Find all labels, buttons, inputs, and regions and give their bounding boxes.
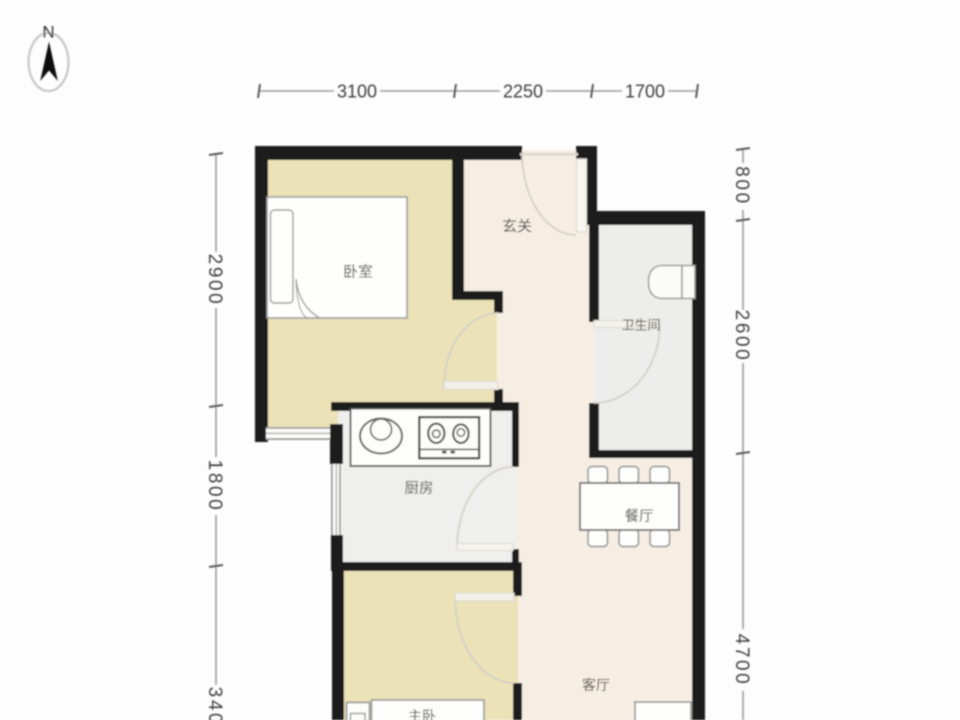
svg-text:1700: 1700 [625,82,665,102]
svg-text:卫生间: 卫生间 [621,318,660,333]
svg-text:1800: 1800 [204,460,225,513]
svg-text:2600: 2600 [731,310,752,363]
svg-text:主卧: 主卧 [408,708,436,720]
svg-text:卧室: 卧室 [343,264,373,281]
svg-text:2900: 2900 [204,254,225,307]
svg-text:3400: 3400 [204,687,225,720]
svg-text:厨房: 厨房 [405,480,434,497]
svg-text:4700: 4700 [731,634,752,687]
svg-text:玄关: 玄关 [502,218,532,235]
svg-text:餐厅: 餐厅 [625,508,654,525]
svg-text:N: N [42,23,54,42]
svg-text:客厅: 客厅 [582,677,610,693]
svg-text:3100: 3100 [337,82,377,102]
svg-text:800: 800 [731,166,752,206]
svg-text:2250: 2250 [503,82,543,102]
